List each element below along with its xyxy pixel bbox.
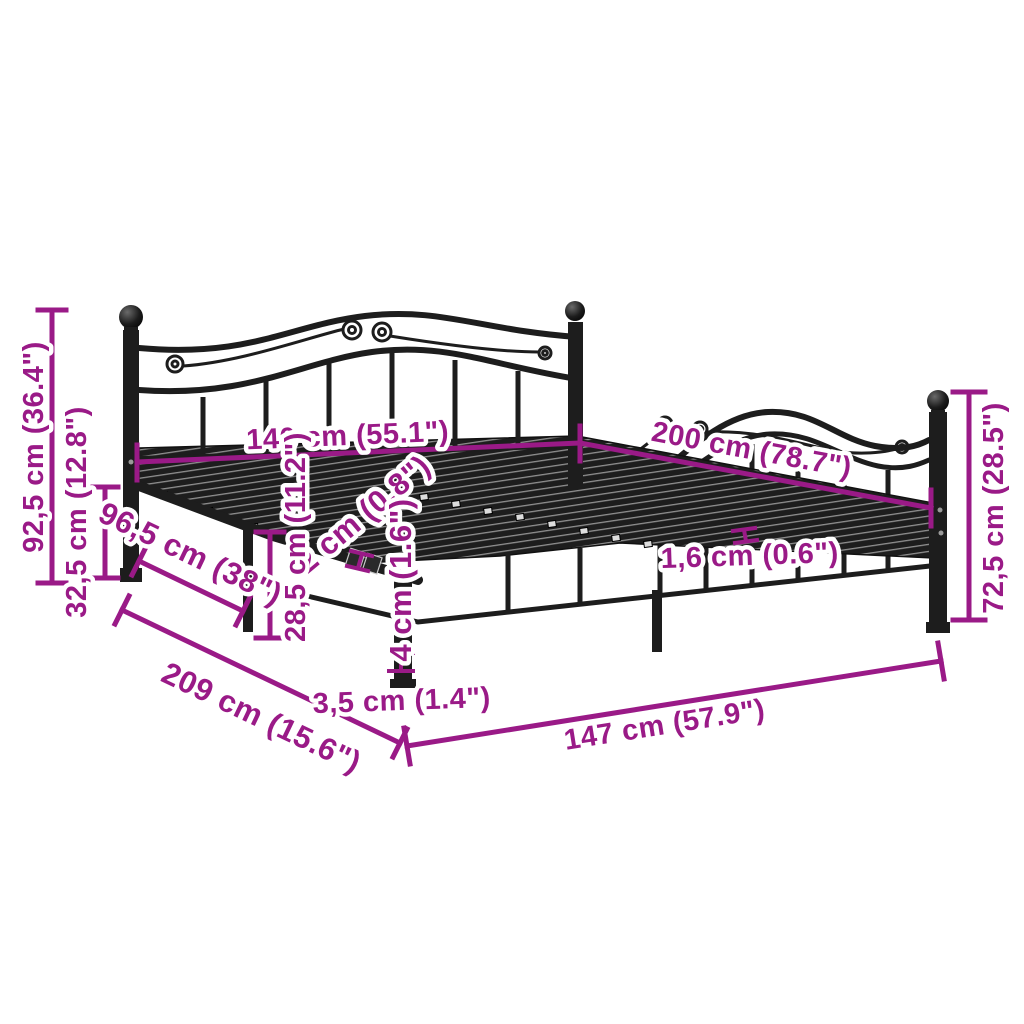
slat-clip bbox=[452, 500, 461, 507]
slat-clip bbox=[580, 527, 589, 534]
dimension-diagram: 92,5 cm (36.4") 32,5 cm (12.8") 140 cm (… bbox=[0, 0, 1024, 1024]
ball-finial bbox=[927, 390, 949, 412]
dim-label-28-5cm: 28,5 cm (11.2") bbox=[280, 432, 312, 642]
dim-label-92-5cm: 92,5 cm (36.4") bbox=[18, 341, 50, 552]
dim-label-1-6cm: 1,6 cm (0.6") bbox=[660, 537, 839, 575]
footboard-left-leg bbox=[652, 590, 662, 652]
slat-clip bbox=[612, 534, 621, 541]
screw-dot bbox=[938, 508, 943, 513]
dim-label-4cm: 4 cm (1.6") bbox=[383, 498, 418, 661]
slat-clip bbox=[420, 493, 429, 500]
lower-support-rail bbox=[256, 566, 930, 622]
screw-dot bbox=[939, 531, 944, 536]
finial-collar bbox=[124, 327, 138, 333]
headboard-top-rail bbox=[139, 314, 577, 350]
slat-clip bbox=[548, 520, 557, 527]
bed-frame-illustration: 92,5 cm (36.4") 32,5 cm (12.8") 140 cm (… bbox=[0, 0, 1024, 1024]
slat-clip bbox=[516, 513, 525, 520]
dim-label-3-5cm: 3,5 cm (1.4") bbox=[312, 682, 491, 720]
dim-label-32-5cm: 32,5 cm (12.8") bbox=[61, 406, 93, 617]
slat-clip bbox=[484, 507, 493, 514]
dim-label-72-5cm: 72,5 cm (28.5") bbox=[978, 402, 1010, 613]
ball-finial bbox=[565, 301, 585, 321]
footboard-post-foot bbox=[926, 622, 950, 633]
headboard-lower-rail-curve bbox=[139, 350, 577, 392]
screw-dot bbox=[129, 460, 134, 465]
slat-clip bbox=[644, 540, 653, 547]
ball-finial bbox=[119, 305, 143, 329]
finial-collar bbox=[931, 410, 945, 416]
